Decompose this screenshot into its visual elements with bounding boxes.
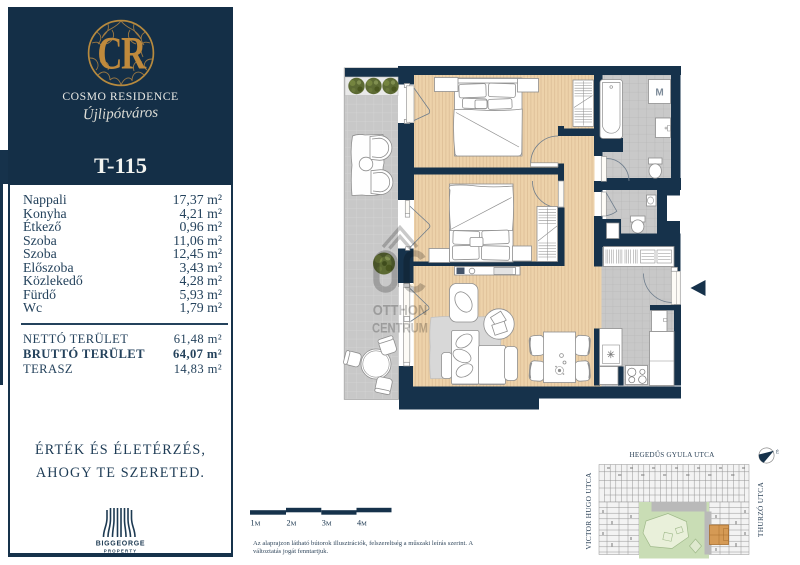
svg-text:VICTOR HUGO UTCA: VICTOR HUGO UTCA	[584, 472, 593, 550]
svg-text:OTTHON: OTTHON	[373, 303, 428, 319]
svg-text:3M: 3M	[322, 519, 332, 528]
svg-text:változtatás jogát fenntartjuk.: változtatás jogát fenntartjuk.	[253, 548, 329, 555]
svg-text:2M: 2M	[287, 519, 297, 528]
svg-text:1M: 1M	[251, 519, 261, 528]
svg-text:4M: 4M	[357, 519, 367, 528]
svg-text:HEGEDŰS GYULA UTCA: HEGEDŰS GYULA UTCA	[629, 449, 715, 459]
svg-text:É: É	[776, 450, 779, 456]
svg-text:M: M	[655, 88, 663, 99]
svg-text:THURZÓ UTCA: THURZÓ UTCA	[755, 482, 765, 538]
svg-text:CENTRUM: CENTRUM	[372, 321, 428, 337]
svg-text:Az alaprajzon látható bútorok: Az alaprajzon látható bútorok illusztrác…	[253, 540, 473, 547]
